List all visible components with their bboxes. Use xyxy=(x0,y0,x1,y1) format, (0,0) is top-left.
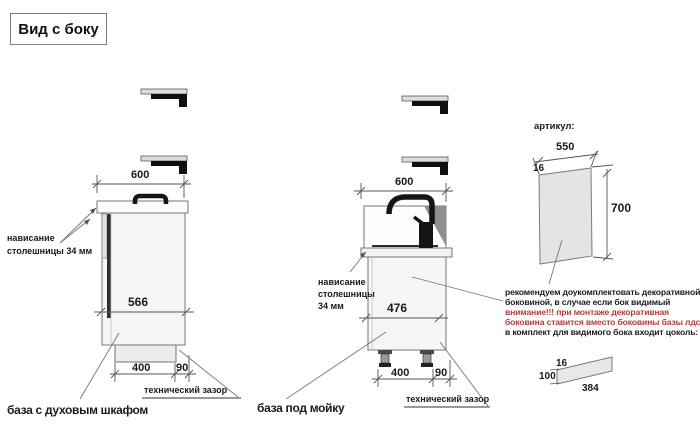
panel-note-line-3: внимание!!! при монтаже декоративная xyxy=(505,308,669,317)
wall-bracket-icon xyxy=(141,89,187,107)
sink-overhang-label-1: нависание xyxy=(318,278,366,287)
sink-gap-dim: 90 xyxy=(435,368,447,379)
sink-base-caption: база под мойку xyxy=(257,402,344,414)
panel-note-line-2: боковиной, в случае если бок видимый xyxy=(505,298,670,307)
linework xyxy=(0,0,700,428)
panel-note-line-4: боковина ставится вместо боковины базы л… xyxy=(505,318,700,327)
oven-gap-label: технический зазор xyxy=(144,386,227,395)
wall-bracket-icon xyxy=(402,157,448,175)
panel-note-line-5: в комплект для видимого бока входит цоко… xyxy=(505,328,698,337)
wall-bracket-icon xyxy=(402,96,448,114)
panel-thickness-dim: 16 xyxy=(533,164,544,174)
panel-note-line-1: рекомендуем доукомплектовать декоративно… xyxy=(505,288,700,297)
article-heading: артикул: xyxy=(534,122,575,132)
oven-overhang-label-1: нависание xyxy=(7,234,55,243)
decor-panel-drawing xyxy=(533,151,613,284)
oven-depth-dim: 566 xyxy=(128,296,148,308)
sink-plinth-dim: 400 xyxy=(391,368,409,379)
sink-base-cabinet xyxy=(361,197,452,367)
oven-plinth-dim: 400 xyxy=(132,363,150,374)
cabinet-leg-icon xyxy=(420,350,434,367)
plinth-length-dim: 384 xyxy=(582,384,599,394)
oven-gap-dim: 90 xyxy=(176,363,188,374)
sink-depth-dim: 476 xyxy=(387,302,407,314)
view-title-box: Вид с боку xyxy=(10,13,107,45)
panel-height-dim: 700 xyxy=(611,202,631,214)
view-title: Вид с боку xyxy=(18,21,99,38)
oven-base-cabinet xyxy=(97,196,188,362)
oven-base-caption: база с духовым шкафом xyxy=(7,404,148,416)
plinth-height-dim: 100 xyxy=(539,372,556,382)
plinth-thickness-dim: 16 xyxy=(556,359,567,369)
oven-overhang-label-2: столешницы 34 мм xyxy=(7,247,92,256)
sink-width-dim: 600 xyxy=(395,177,413,188)
oven-width-dim: 600 xyxy=(131,170,149,181)
sink-gap-label: технический зазор xyxy=(406,395,489,404)
side-view-drawing: Вид с боку 600 566 400 90 технический за… xyxy=(0,0,700,428)
sink-overhang-label-2: столешницы xyxy=(318,290,375,299)
cabinet-leg-icon xyxy=(378,350,392,367)
panel-width-dim: 550 xyxy=(556,142,574,153)
sink-overhang-label-3: 34 мм xyxy=(318,302,344,311)
